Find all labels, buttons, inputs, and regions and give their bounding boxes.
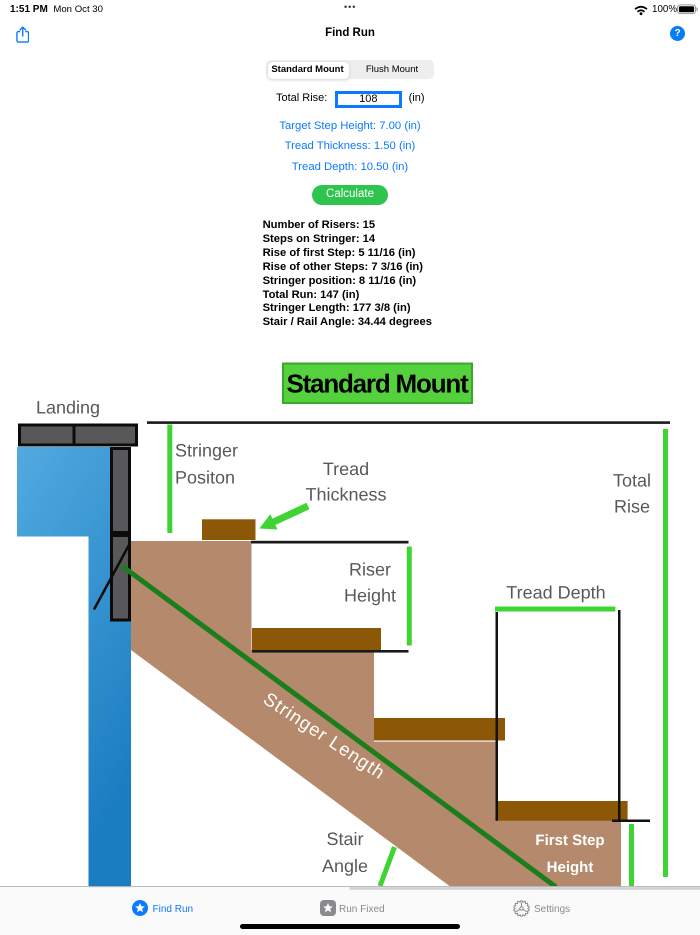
svg-text:Stringer: Stringer <box>175 441 238 461</box>
svg-text:First Step: First Step <box>535 832 604 849</box>
svg-text:Positon: Positon <box>175 468 235 488</box>
svg-text:Rise: Rise <box>614 497 650 517</box>
svg-text:Angle: Angle <box>322 856 368 876</box>
svg-text:Height: Height <box>344 586 396 606</box>
svg-text:Total: Total <box>613 471 651 491</box>
svg-text:Standard Mount: Standard Mount <box>286 369 469 399</box>
svg-text:Landing: Landing <box>36 398 100 418</box>
svg-text:Height: Height <box>547 859 594 876</box>
svg-text:Tread: Tread <box>323 459 369 479</box>
svg-text:Thickness: Thickness <box>305 485 386 505</box>
svg-text:Tread Depth: Tread Depth <box>506 583 605 603</box>
svg-text:Riser: Riser <box>349 560 391 580</box>
svg-text:Stair: Stair <box>326 829 363 849</box>
